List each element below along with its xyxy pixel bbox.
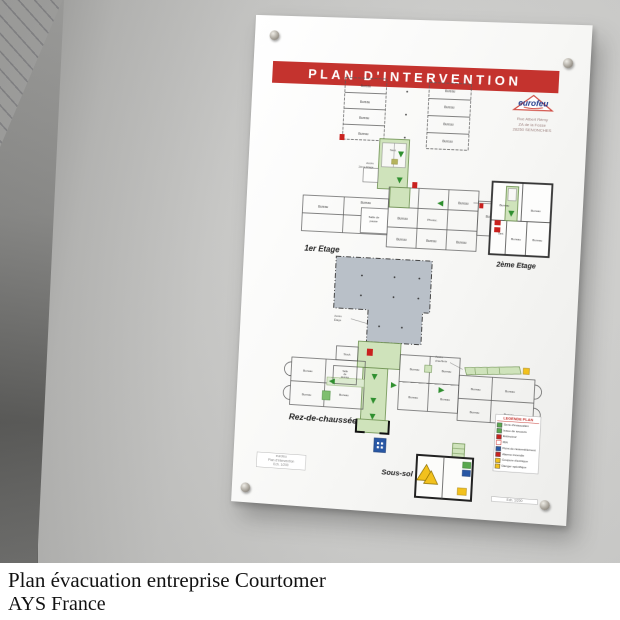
emergency-exit-icon <box>497 428 502 433</box>
warning-icon <box>457 488 466 496</box>
room-label: Bureau <box>444 105 455 109</box>
evacuation-arrow-icon <box>391 382 397 388</box>
room-label: Bureau <box>505 389 515 394</box>
fire-extinguisher-icon <box>412 182 417 188</box>
caption-bar: Plan évacuation entreprise Courtomer AYS… <box>0 563 620 620</box>
warning-icon <box>523 368 529 374</box>
power-cutoff-icon <box>495 458 500 463</box>
fire-extinguisher-icon <box>339 134 344 140</box>
room-label: Sani. <box>390 148 397 152</box>
legend-box: LEGENDE PLAN Sens d'évacuation Issue de … <box>493 414 542 474</box>
room-label: Bureau <box>358 132 369 136</box>
room-label: Photoc. <box>427 218 438 223</box>
assembly-point-icon <box>496 446 501 451</box>
fire-alarm-icon <box>495 452 500 457</box>
exit-icon <box>463 462 471 469</box>
evacuation-direction-icon <box>497 422 502 427</box>
fire-extinguisher-icon <box>496 434 501 439</box>
annotation-label: 2ème Etage <box>359 165 375 170</box>
room-label: réunion <box>341 376 350 380</box>
fire-extinguisher-icon <box>494 220 500 225</box>
floor-label-ground: Rez-de-chaussée <box>289 411 358 426</box>
legend-label: Alarme incendie <box>502 453 524 458</box>
caption-title: Plan évacuation entreprise Courtomer <box>8 568 620 592</box>
room-label: Sani. <box>498 231 504 235</box>
legend-label: RIA <box>503 441 508 444</box>
room-label: Bureau <box>360 100 371 104</box>
fire-extinguisher-icon <box>367 349 373 356</box>
room-label: Bureau <box>531 209 541 214</box>
legend-label: Sens d'évacuation <box>504 423 529 428</box>
room-label: Bureau <box>442 139 453 143</box>
room-label: Bureau <box>499 203 509 208</box>
room-label: Bureau <box>408 395 418 400</box>
utility-icon <box>391 159 397 164</box>
legend-label: Extincteur <box>503 435 517 439</box>
room-label: Bureau <box>443 122 454 126</box>
room-label: Bureau <box>442 369 452 374</box>
floor-label-first: 1er Etage <box>304 244 340 255</box>
room-label: Bureau <box>458 201 469 206</box>
evacuation-arrow-icon <box>437 200 443 206</box>
plan-basement <box>415 441 474 501</box>
room-label: Stock <box>343 352 351 356</box>
specific-danger-icon <box>495 464 500 469</box>
room-label: Bureau <box>361 84 372 88</box>
caption-subtitle: AYS France <box>8 592 620 616</box>
room-label: Bureau <box>456 240 467 245</box>
plan-second-floor <box>489 182 553 257</box>
room-label: pause <box>370 219 379 223</box>
room-label: Bureau <box>302 392 312 397</box>
annotation-label: Étage <box>334 317 342 322</box>
room-label: Bureau <box>361 201 372 206</box>
room-label: Bureau <box>445 89 456 93</box>
legend-label: Issue de secours <box>503 429 527 434</box>
stairs-icon <box>424 365 431 372</box>
room-label: Bureau <box>318 205 329 209</box>
plan-hall-gray <box>332 256 432 345</box>
room-label: Bureau <box>532 238 542 243</box>
room-label: Bureau <box>470 410 480 415</box>
ria-icon <box>496 440 501 445</box>
room-label: Bureau <box>339 393 349 398</box>
legend-label: Coupure électrique <box>502 459 528 464</box>
room-label: Bureau <box>410 367 420 372</box>
floor-label-second: 2ème Etage <box>495 261 536 270</box>
room-label: Bureau <box>303 369 313 374</box>
photo-wall-mounted-evacuation-plan: PLAN D'INTERVENTION eurofeu Rue Albert R… <box>0 0 620 620</box>
room-label: Bureau <box>471 387 481 392</box>
assembly-point-icon <box>374 438 387 453</box>
room-label: Bureau <box>426 239 437 244</box>
intervention-plan-panel: PLAN D'INTERVENTION eurofeu Rue Albert R… <box>231 15 592 526</box>
fire-extinguisher-icon <box>479 203 483 208</box>
info-icon <box>462 470 470 477</box>
room-label: Bureau <box>511 237 521 242</box>
floor-label-basement: Sous-sol <box>381 467 414 478</box>
emergency-exit-icon <box>322 391 330 400</box>
room-label: Bureau <box>359 116 370 120</box>
room-label: Bureau <box>397 216 408 221</box>
annotation-label: chaufferie <box>435 359 448 364</box>
room-label: Bureau <box>396 237 407 242</box>
room-label: Bureau <box>440 397 450 402</box>
evacuation-arrow-icon <box>438 387 444 393</box>
legend-label: Danger spécifique <box>501 465 526 470</box>
